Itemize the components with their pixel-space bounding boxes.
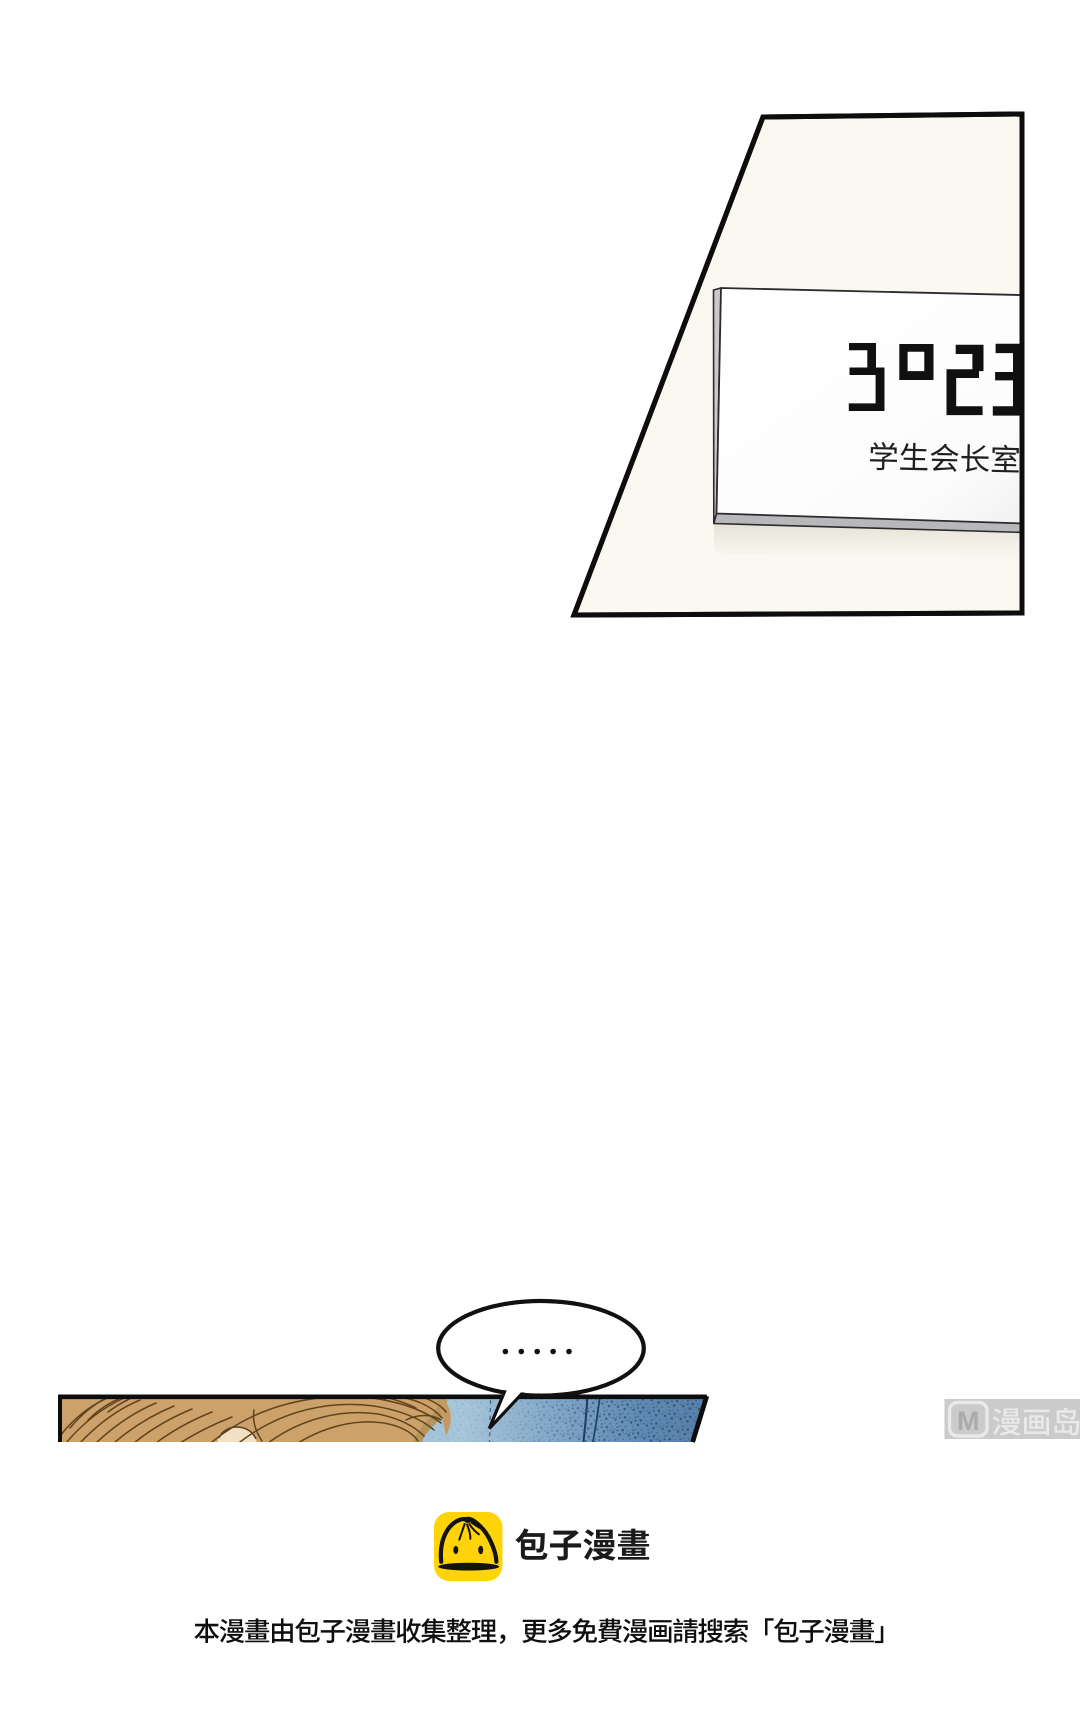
svg-text:M: M (957, 1406, 980, 1436)
